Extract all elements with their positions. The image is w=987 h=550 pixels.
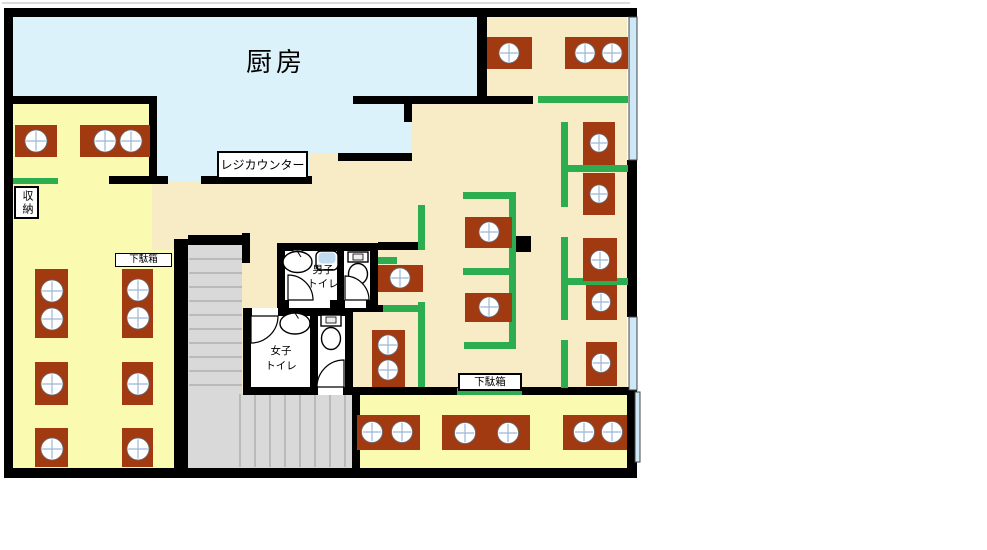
- window-right-bottom: [635, 392, 640, 462]
- dining-table: [372, 330, 405, 387]
- partition-screen: [561, 122, 568, 207]
- dining-table: [586, 342, 617, 386]
- dining-table: [563, 415, 627, 450]
- partition-screen: [561, 340, 568, 388]
- dining-table: [35, 428, 68, 467]
- wall-center-stub: [516, 236, 531, 252]
- dining-table: [122, 428, 153, 467]
- partition-screen: [418, 205, 425, 250]
- wall-stairs-top: [188, 235, 247, 245]
- partition-screen: [463, 268, 509, 275]
- partition-screen: [538, 96, 628, 103]
- top-faint-line: [2, 2, 630, 4]
- dining-table: [122, 362, 153, 405]
- dining-table: [586, 285, 617, 320]
- womens-toilet-tank-lid: [326, 317, 336, 323]
- partition-screen: [464, 342, 516, 349]
- register-counter-label: レジカウンター: [217, 151, 308, 179]
- shoe-cabinet-label-left: 下駄箱: [115, 253, 172, 267]
- partition-screen: [13, 178, 58, 184]
- wall-stairs-entry: [242, 233, 250, 263]
- dining-table: [565, 37, 628, 69]
- window-right-top: [629, 17, 637, 160]
- womens-sink: [280, 313, 310, 334]
- wall-border-left: [4, 8, 13, 478]
- dining-table: [465, 293, 512, 322]
- dining-table: [583, 122, 615, 165]
- dining-table: [442, 415, 530, 450]
- partition-screen: [463, 192, 516, 199]
- floor-plan-svg: [0, 0, 987, 550]
- kitchen-floor-mid: [157, 96, 412, 153]
- dining-table: [465, 217, 512, 248]
- dining-table: [35, 269, 68, 338]
- mens-toilet-label: 男子 トイレ: [302, 263, 344, 291]
- storage-label: 収納: [14, 186, 39, 219]
- wall-stairs-left: [174, 239, 188, 468]
- wall-border-top: [4, 8, 637, 17]
- wall-border-bottom: [4, 468, 637, 478]
- left-room-strip: [152, 250, 174, 468]
- partition-screen: [378, 257, 397, 264]
- wall-right-mid: [627, 160, 637, 317]
- wall-kitchen-right-bottom: [353, 96, 533, 104]
- wall-toilet-top-ext: [378, 242, 425, 250]
- wall-kitchen-left: [13, 96, 153, 104]
- urinal-bowl: [319, 253, 336, 264]
- dining-table: [122, 269, 153, 338]
- kitchen-floor: [13, 17, 477, 96]
- partition-screen: [418, 302, 425, 387]
- dining-table: [80, 125, 150, 157]
- dining-table: [378, 265, 423, 292]
- dining-table: [487, 37, 532, 69]
- wall-hall-stub-left: [109, 176, 168, 184]
- kitchen-label: 厨房: [246, 42, 306, 79]
- womens-toilet-label: 女子 トイレ: [259, 344, 303, 374]
- mens-toilet-tank-lid: [353, 254, 363, 260]
- shoe-cabinet-label-right: 下駄箱: [458, 373, 522, 391]
- partition-screen: [383, 305, 425, 312]
- dining-table: [583, 173, 615, 215]
- restaurant-floor-plan: 厨房 レジカウンター 収納 下駄箱 下駄箱 男子 トイレ 女子 トイレ: [0, 0, 987, 550]
- window-right-mid: [629, 317, 637, 390]
- partition-screen: [568, 165, 628, 172]
- wall-kitchen-right: [477, 17, 487, 104]
- wall-kitchen-step: [338, 153, 412, 161]
- dining-table: [583, 238, 617, 281]
- dining-table: [15, 125, 57, 157]
- womens-toilet-bowl: [322, 328, 341, 350]
- dining-table: [35, 362, 68, 405]
- dining-table: [357, 415, 420, 450]
- wall-kitchen-vertical: [149, 96, 157, 184]
